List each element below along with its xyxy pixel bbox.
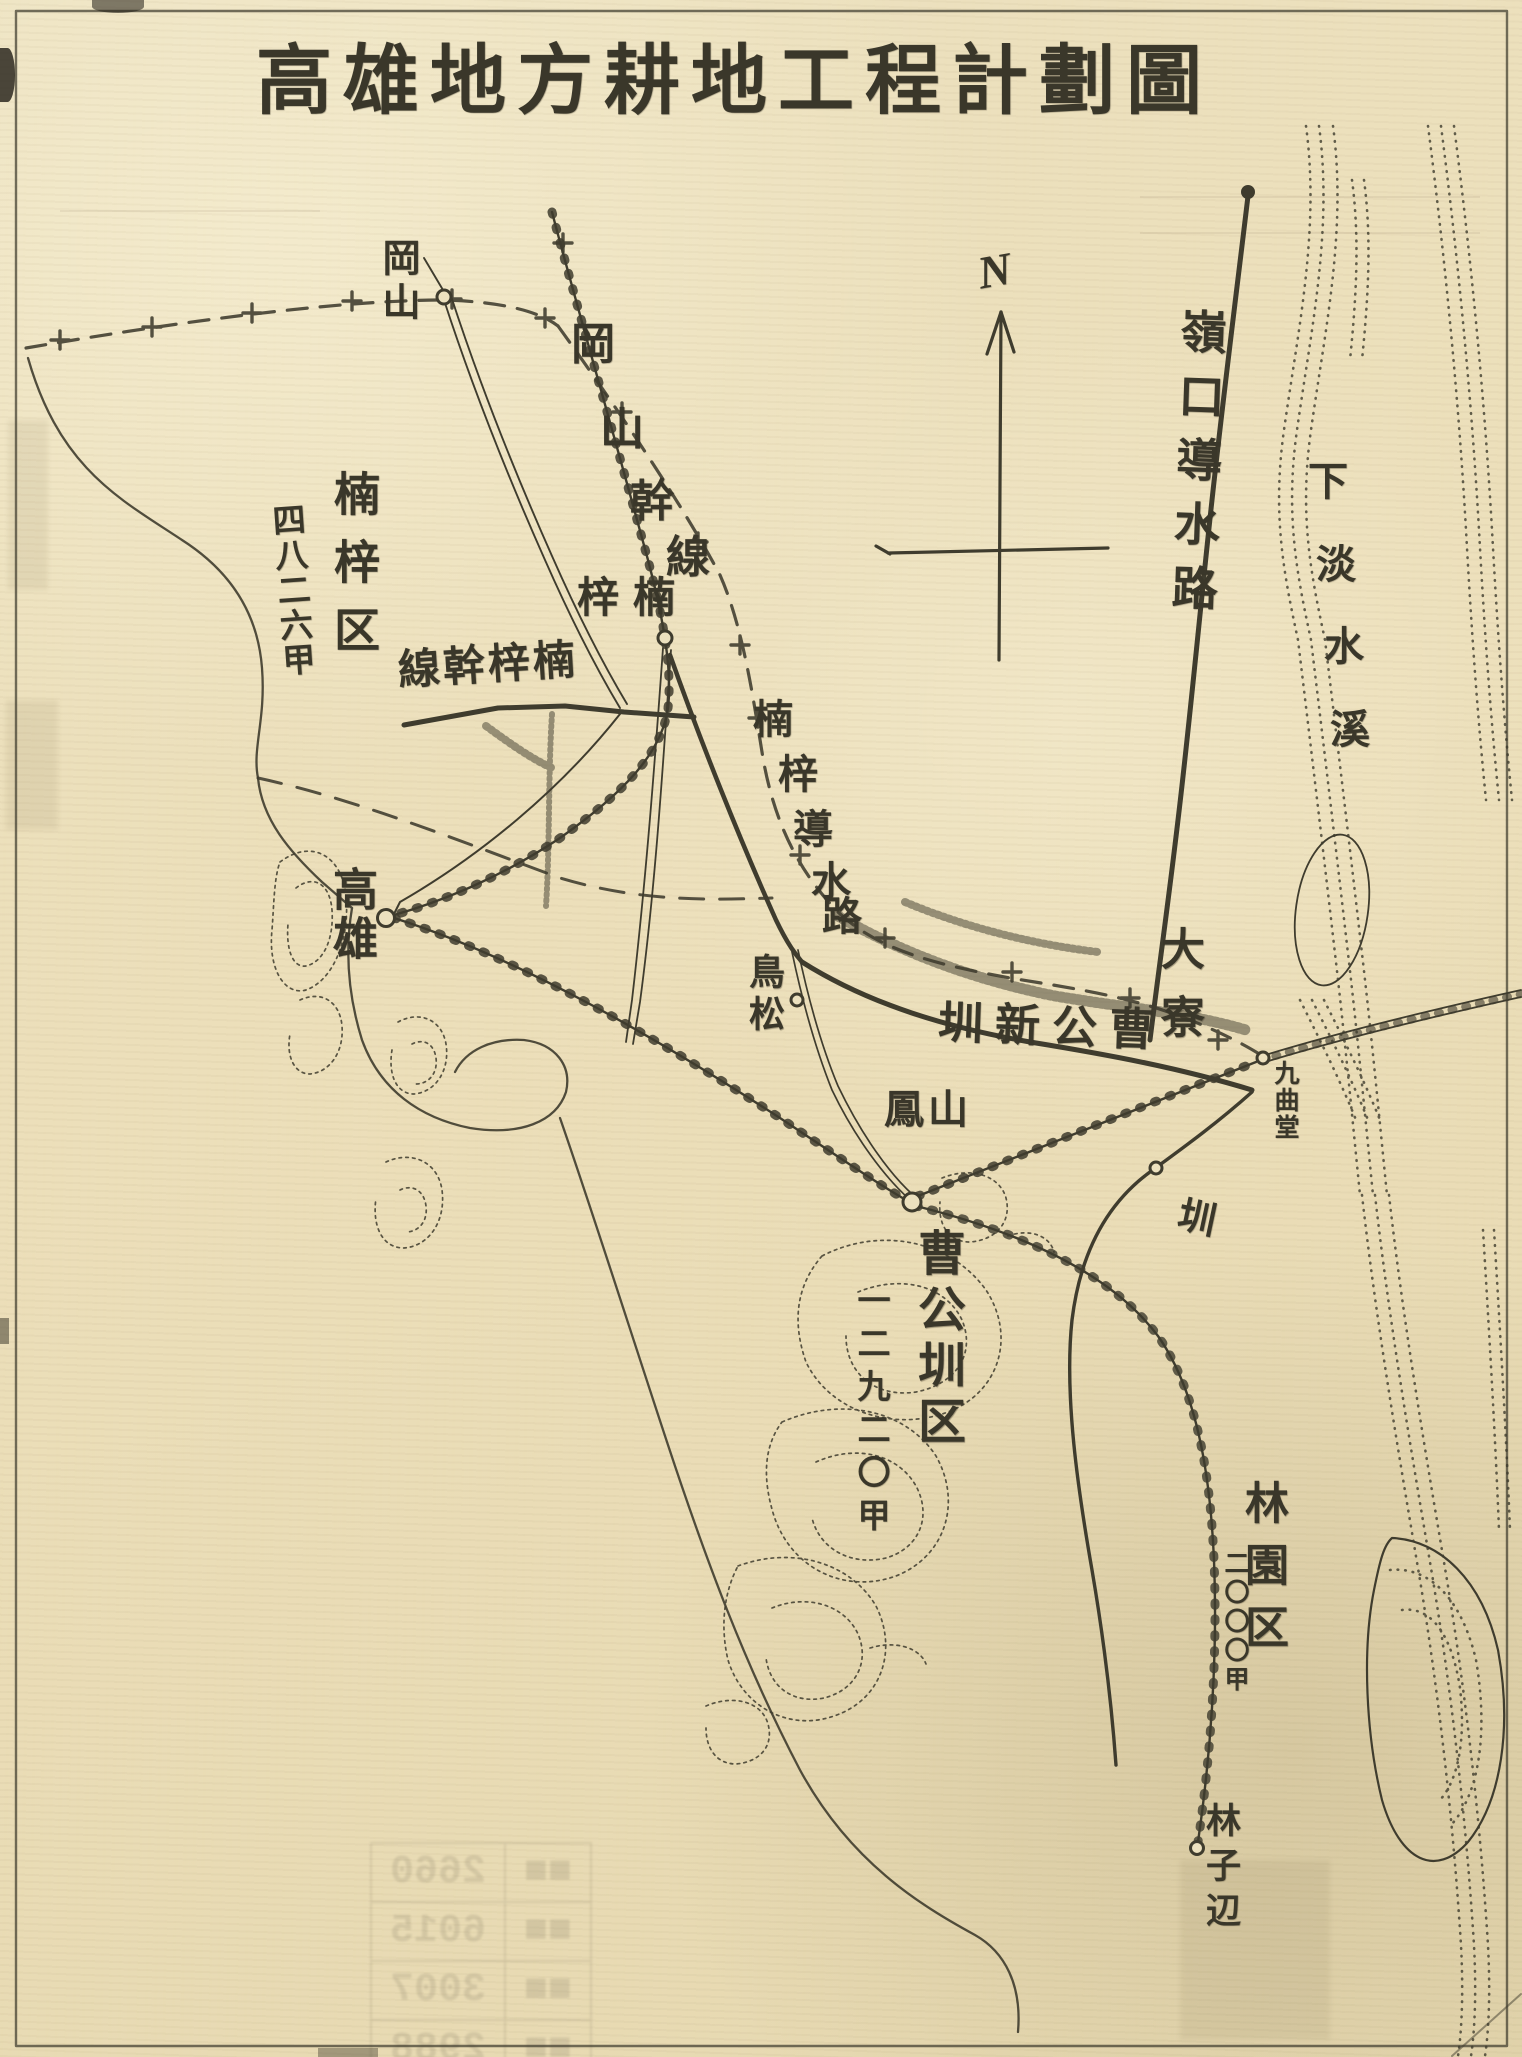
river-label-char: 淡	[1316, 545, 1356, 585]
canal-label-okayama-kansen-char: 山	[600, 408, 644, 452]
canal-label-nanzi-kansen: 線幹梓楠	[397, 640, 579, 693]
station-markers	[378, 290, 1270, 1855]
station-marker-kyokudo	[1257, 1052, 1269, 1064]
compass-crossbar	[876, 546, 1108, 554]
railway-okayama-takao	[394, 212, 669, 915]
place-label-rinshihen: 林子辺	[1203, 1802, 1238, 1937]
slope-tick-bands	[486, 714, 1246, 1030]
place-label-torimatsu: 鳥松	[746, 953, 782, 1037]
river-stipple	[1279, 126, 1512, 2056]
river-label-char: 下	[1308, 462, 1348, 502]
station-marker-torimatsu	[791, 994, 803, 1006]
canal-label-nanzi-dosuiro-char: 導	[793, 810, 833, 850]
place-label-okayama: 岡山	[378, 238, 416, 326]
canal-label-reiko: 嶺口導水路	[1166, 307, 1223, 628]
station-marker-takao	[378, 910, 395, 927]
canal-label-nanzi-dosuiro-char: 路	[822, 897, 862, 937]
sandbar-island	[1367, 1538, 1504, 1861]
station-marker-hozan	[903, 1193, 921, 1211]
region-label-soko: 曹公圳区	[912, 1228, 960, 1452]
region-area-ringen: 二〇〇〇甲	[1222, 1550, 1247, 1695]
canal-label-okayama-kansen-char: 線	[666, 536, 710, 580]
region-label-nanzi: 楠梓区	[330, 470, 376, 674]
river-label-char: 溪	[1330, 710, 1370, 750]
place-label-nanzi-station: 梓楠	[577, 578, 689, 620]
canal-label-soko-shin: 圳新公曹	[937, 1001, 1166, 1054]
scanned-map-page: ■■2660 ■■6015 ■■3007 ■■2988	[0, 0, 1522, 2057]
railway-takao-hozan	[394, 918, 906, 1200]
river-label-char: 水	[1324, 627, 1364, 667]
station-marker-tairyo	[1150, 1162, 1162, 1174]
canal-label-tairyo-lower: 圳	[1174, 1196, 1219, 1241]
canal-label-okayama-kansen-char: 幹	[630, 480, 674, 524]
oxbow-pond	[1286, 830, 1378, 991]
canal-label-tairyo-upper: 大寮	[1156, 926, 1200, 1062]
compass	[876, 312, 1108, 660]
canal-head-dot	[1242, 186, 1255, 199]
map-title: 高雄地方耕地工程計劃圖	[256, 44, 1213, 120]
canal-label-nanzi-dosuiro-char: 楠	[753, 700, 793, 740]
canal-label-okayama-kansen-char: 岡	[571, 323, 615, 367]
place-label-kyokudo: 九曲堂	[1272, 1060, 1297, 1141]
compass-needle	[999, 312, 1001, 660]
station-marker-okayama	[437, 290, 451, 304]
place-label-hozan: 鳳山	[884, 1090, 972, 1130]
place-label-takao: 高雄	[328, 866, 373, 964]
region-area-soko: 一二九二〇甲	[853, 1283, 886, 1541]
station-marker-nanzi	[658, 631, 672, 645]
boundary-dashed	[26, 234, 1268, 1060]
canal-label-nanzi-dosuiro-char: 梓	[778, 755, 818, 795]
coastline	[28, 358, 1019, 2032]
